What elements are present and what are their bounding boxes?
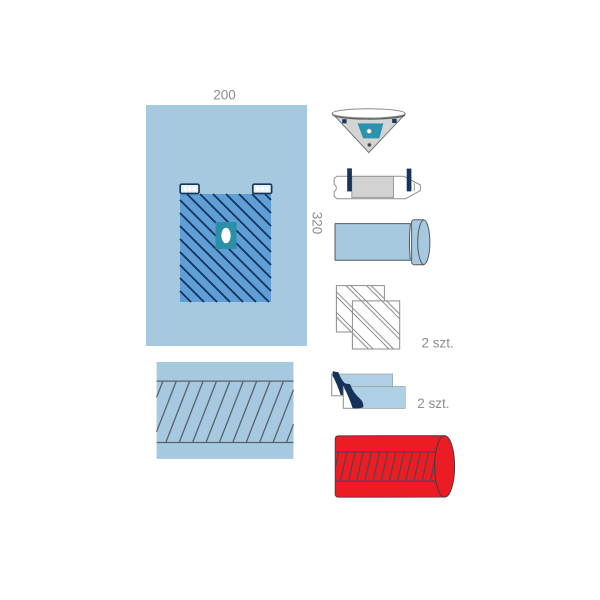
svg-text:2 szt.: 2 szt.: [421, 336, 453, 351]
svg-text:2 szt.: 2 szt.: [417, 396, 449, 411]
svg-text:320: 320: [310, 212, 325, 235]
svg-text:200: 200: [213, 88, 236, 103]
